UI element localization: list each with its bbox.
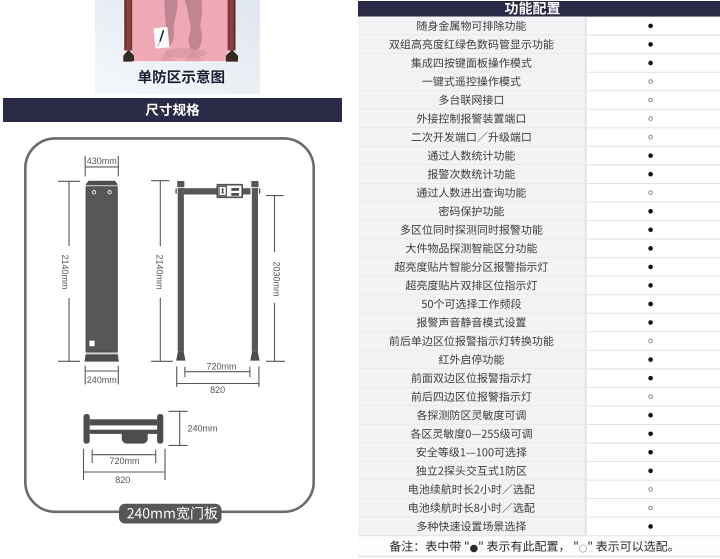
- svg-text:430mm: 430mm: [87, 156, 117, 166]
- svg-text:240mm: 240mm: [188, 423, 218, 433]
- svg-text:720mm: 720mm: [206, 362, 236, 372]
- svg-text:820: 820: [115, 475, 130, 485]
- svg-text:820: 820: [210, 385, 225, 395]
- svg-text:720mm: 720mm: [109, 456, 139, 466]
- svg-text:240mm: 240mm: [87, 375, 117, 385]
- svg-text:2030mm: 2030mm: [272, 261, 282, 296]
- svg-text:2140mm: 2140mm: [155, 254, 165, 289]
- svg-text:2140mm: 2140mm: [60, 254, 70, 289]
